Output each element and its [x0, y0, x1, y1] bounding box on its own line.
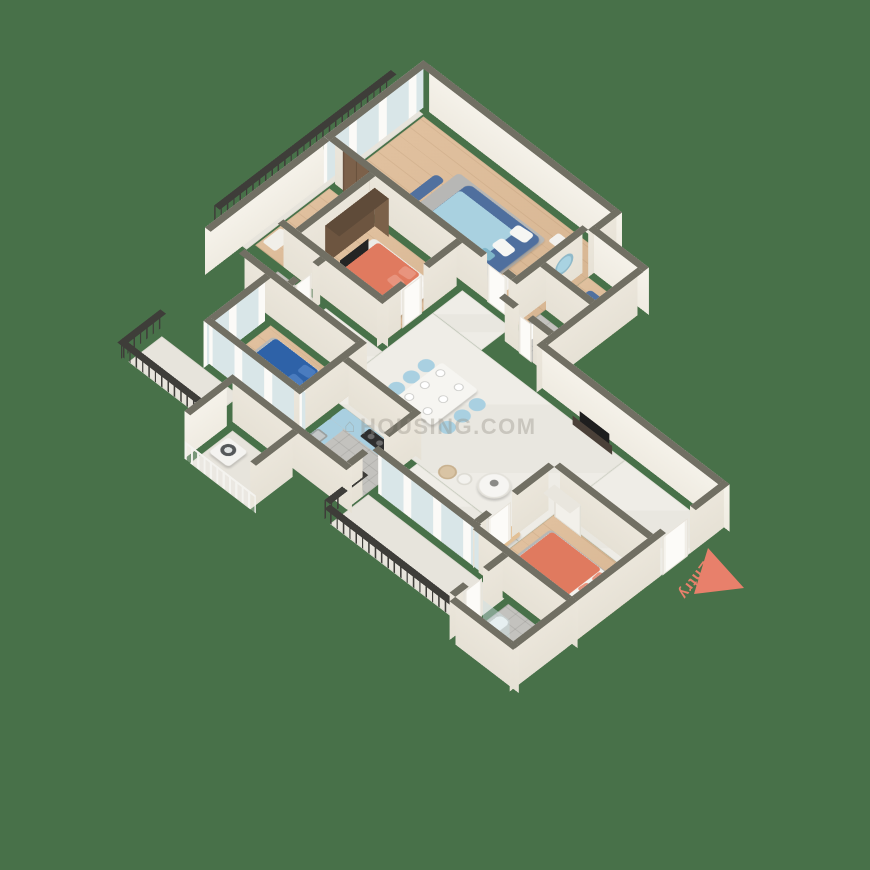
- entry-door: [662, 556, 693, 580]
- floor-plan-stage: ⌂ HOUSING.COM Entry: [0, 0, 870, 870]
- wall-utility-east: [250, 477, 298, 514]
- wall-bathroom-bottom-south: [450, 644, 519, 697]
- wall-entry-upper: [690, 527, 730, 557]
- entry-arrow: [694, 548, 748, 611]
- entry-triangle-icon: [694, 548, 748, 606]
